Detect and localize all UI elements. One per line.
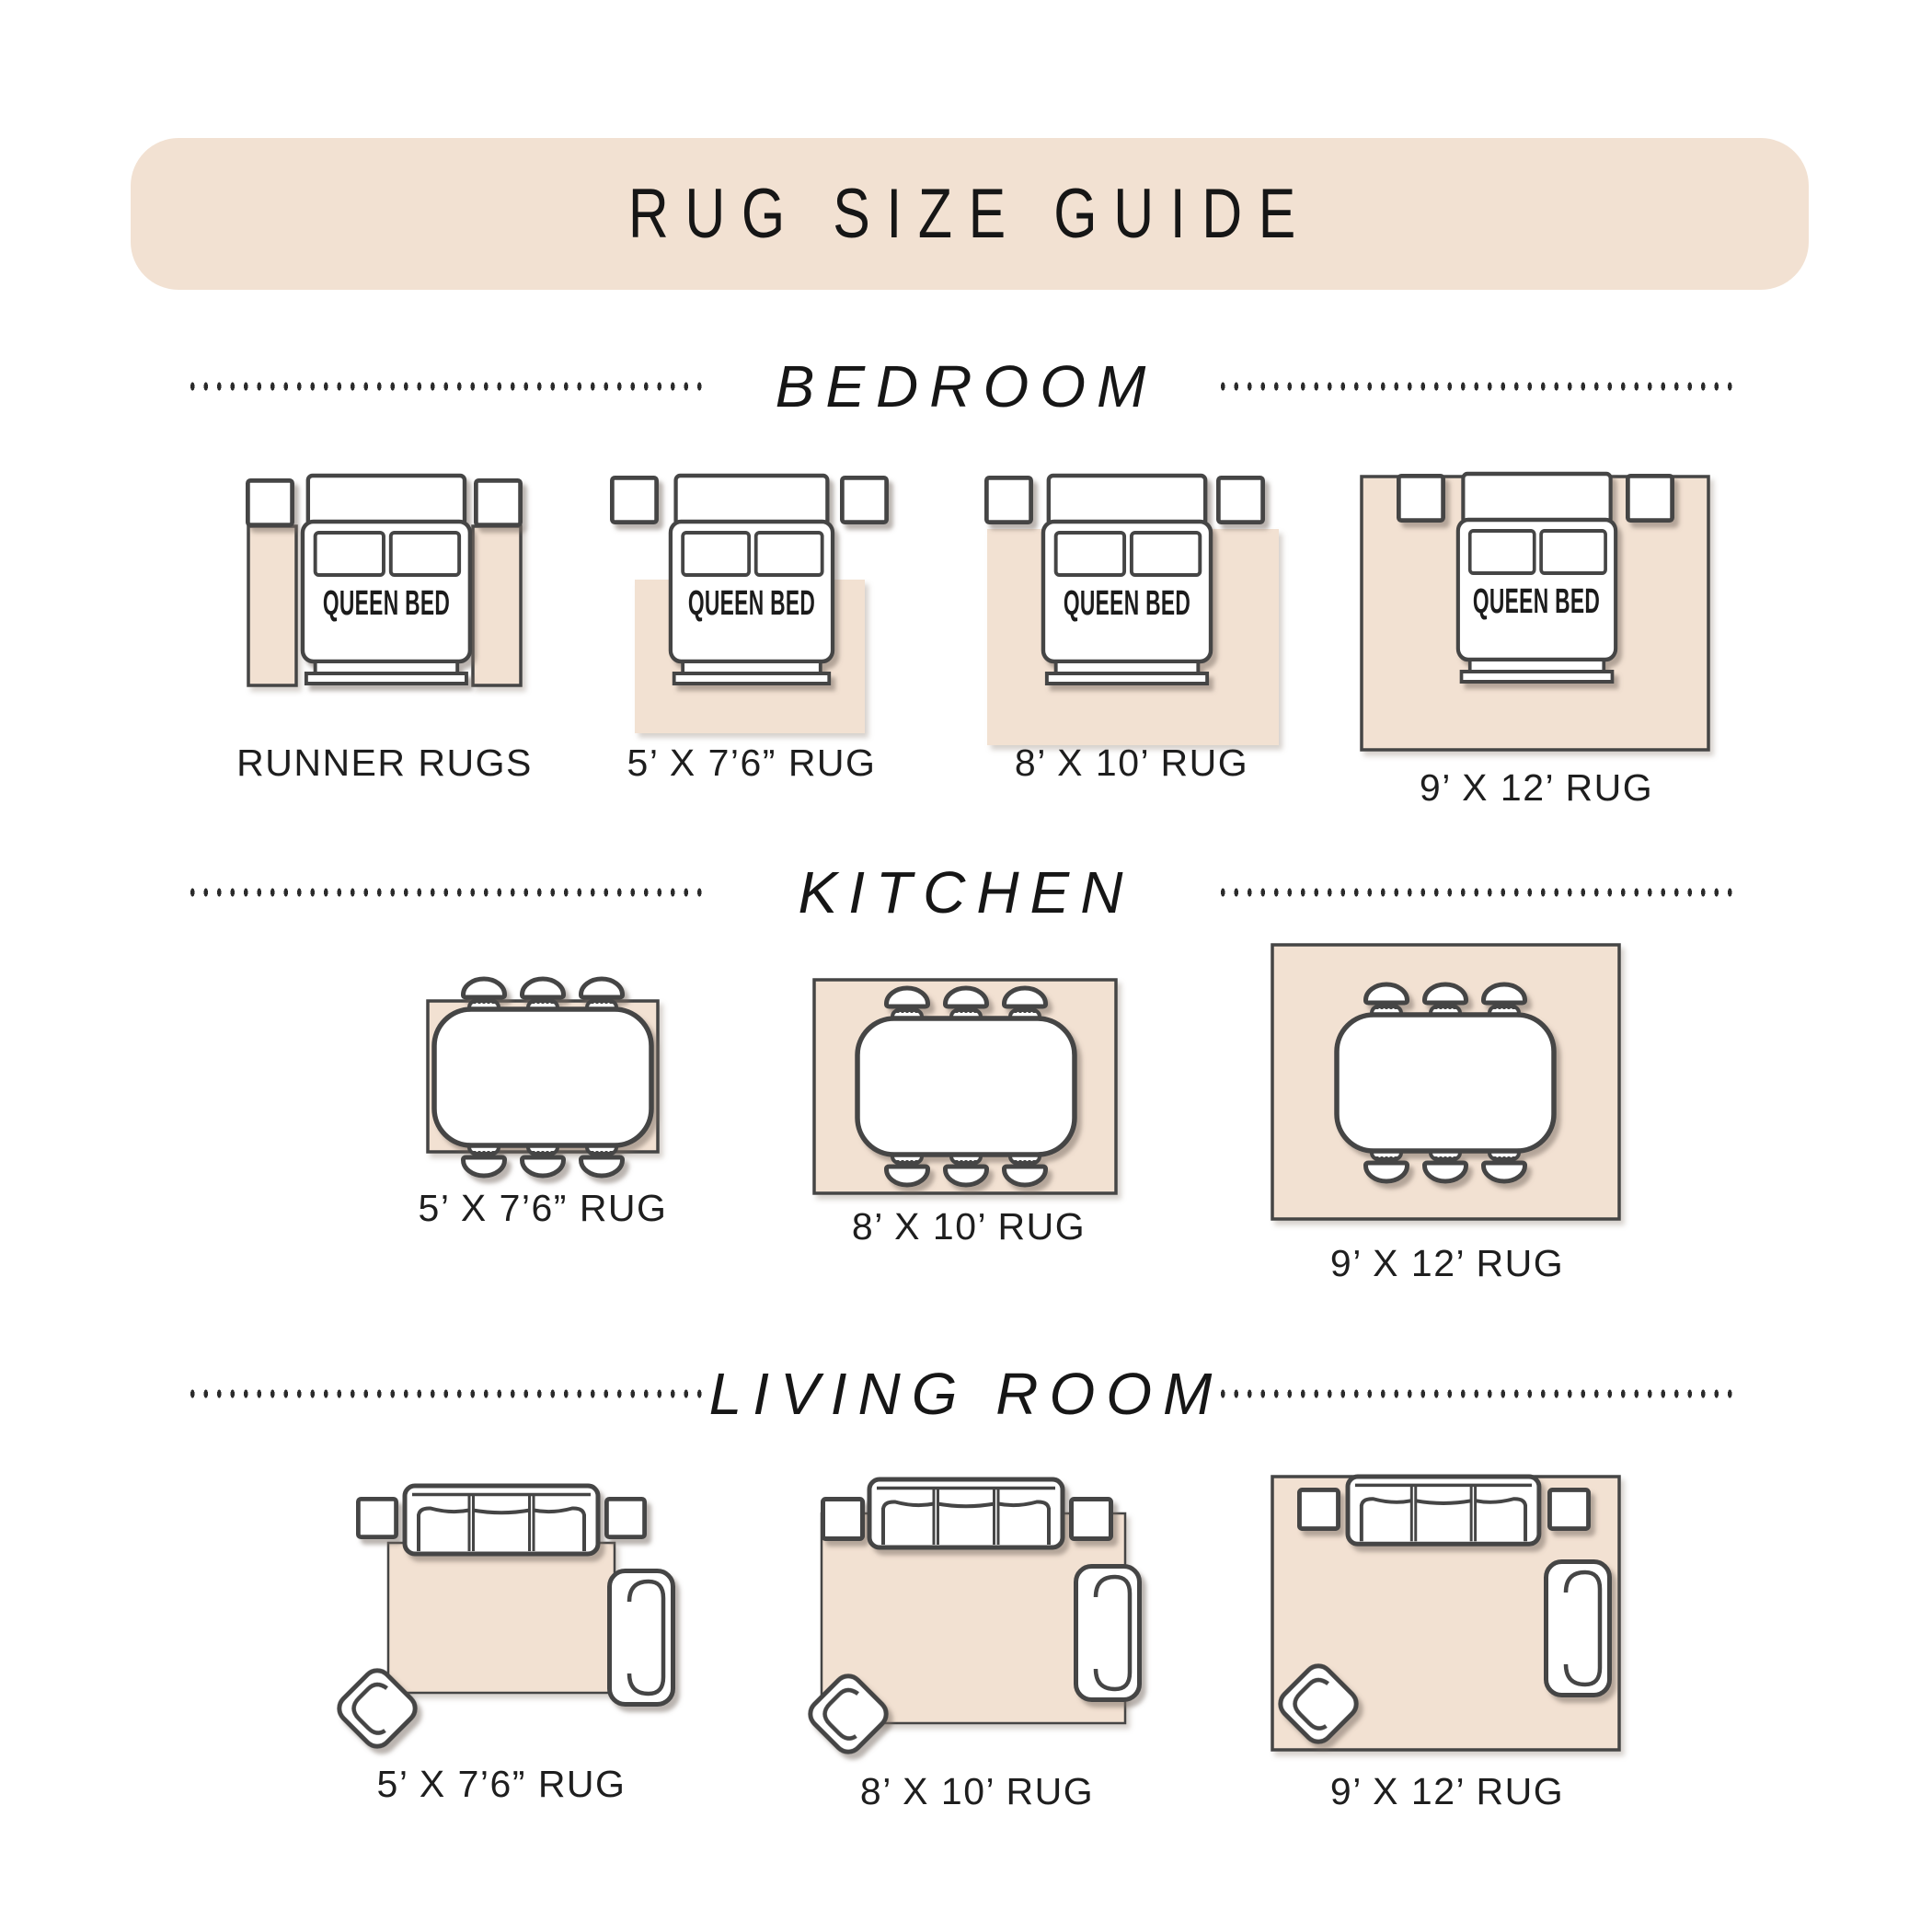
nightstand-icon bbox=[1627, 476, 1672, 520]
nightstand-icon bbox=[986, 477, 1030, 522]
bedroom-runner-rugs-diagram: QUEEN BED bbox=[230, 465, 543, 741]
kitchen-5x76-diagram bbox=[405, 957, 681, 1205]
runner-rug-left bbox=[248, 526, 296, 685]
side-table-icon bbox=[1072, 1500, 1111, 1539]
sofa-icon bbox=[1348, 1477, 1539, 1544]
queen-bed-icon bbox=[671, 476, 833, 684]
nightstand-icon bbox=[612, 477, 656, 522]
side-table-icon bbox=[1549, 1489, 1588, 1528]
dotted-divider-right bbox=[1216, 887, 1733, 898]
armchair-icon bbox=[1547, 1562, 1610, 1696]
bedroom-5x76-diagram: QUEEN BED bbox=[603, 465, 906, 741]
rug-size-label: 9’ X 12’ RUG bbox=[1217, 1242, 1677, 1285]
dining-table-chairs-icon bbox=[1337, 984, 1554, 1181]
side-table-icon bbox=[1299, 1489, 1338, 1528]
rug-size-label: 5’ X 7’6” RUG bbox=[271, 1763, 731, 1806]
living-room-5x76-diagram bbox=[322, 1467, 699, 1766]
side-table-icon bbox=[823, 1500, 863, 1539]
dining-table-chairs-icon bbox=[857, 988, 1075, 1185]
dining-table-chairs-icon bbox=[434, 979, 651, 1176]
bed-label: QUEEN BED bbox=[1064, 583, 1190, 622]
rug-size-label: 5’ X 7’6” RUG bbox=[313, 1187, 773, 1230]
header-banner: RUG SIZE GUIDE bbox=[131, 138, 1809, 290]
nightstand-icon bbox=[1398, 476, 1443, 520]
dotted-divider-right bbox=[1216, 381, 1733, 392]
rug-size-label: 8’ X 10’ RUG bbox=[902, 742, 1362, 785]
side-table-icon bbox=[606, 1499, 644, 1536]
kitchen-9x12-diagram bbox=[1260, 934, 1647, 1265]
nightstand-icon bbox=[1218, 477, 1262, 522]
bed-label: QUEEN BED bbox=[1473, 581, 1600, 620]
kitchen-8x10-diagram bbox=[800, 957, 1150, 1242]
bed-label: QUEEN BED bbox=[688, 583, 815, 622]
sofa-icon bbox=[405, 1486, 598, 1554]
living-room-8x10-diagram bbox=[791, 1467, 1159, 1766]
armchair-icon bbox=[1076, 1567, 1140, 1700]
queen-bed-icon bbox=[303, 476, 470, 684]
queen-bed-icon bbox=[1043, 476, 1211, 684]
bedroom-8x10-diagram: QUEEN BED bbox=[975, 465, 1288, 754]
nightstand-icon bbox=[476, 480, 520, 524]
rug-size-label: 9’ X 12’ RUG bbox=[1306, 766, 1766, 810]
bed-label: QUEEN BED bbox=[323, 583, 450, 622]
rug-size-label: 8’ X 10’ RUG bbox=[739, 1205, 1199, 1248]
queen-bed-icon bbox=[1458, 474, 1616, 682]
living-room-9x12-diagram bbox=[1260, 1467, 1647, 1766]
rug-5x76 bbox=[388, 1543, 615, 1693]
runner-rug-right bbox=[473, 526, 521, 685]
rug-size-label: 9’ X 12’ RUG bbox=[1217, 1770, 1677, 1813]
page-title: RUG SIZE GUIDE bbox=[627, 174, 1311, 254]
dotted-divider-right bbox=[1216, 1388, 1733, 1399]
nightstand-icon bbox=[842, 477, 886, 522]
rug-size-guide-infographic: RUG SIZE GUIDE BEDROOM QUEEN BED QUEEN B… bbox=[0, 0, 1932, 1932]
side-table-icon bbox=[358, 1499, 396, 1536]
bedroom-9x12-diagram: QUEEN BED bbox=[1348, 465, 1725, 764]
nightstand-icon bbox=[247, 480, 292, 524]
sofa-icon bbox=[869, 1479, 1063, 1547]
armchair-icon bbox=[610, 1571, 673, 1705]
rug-size-label: 8’ X 10’ RUG bbox=[747, 1770, 1207, 1813]
